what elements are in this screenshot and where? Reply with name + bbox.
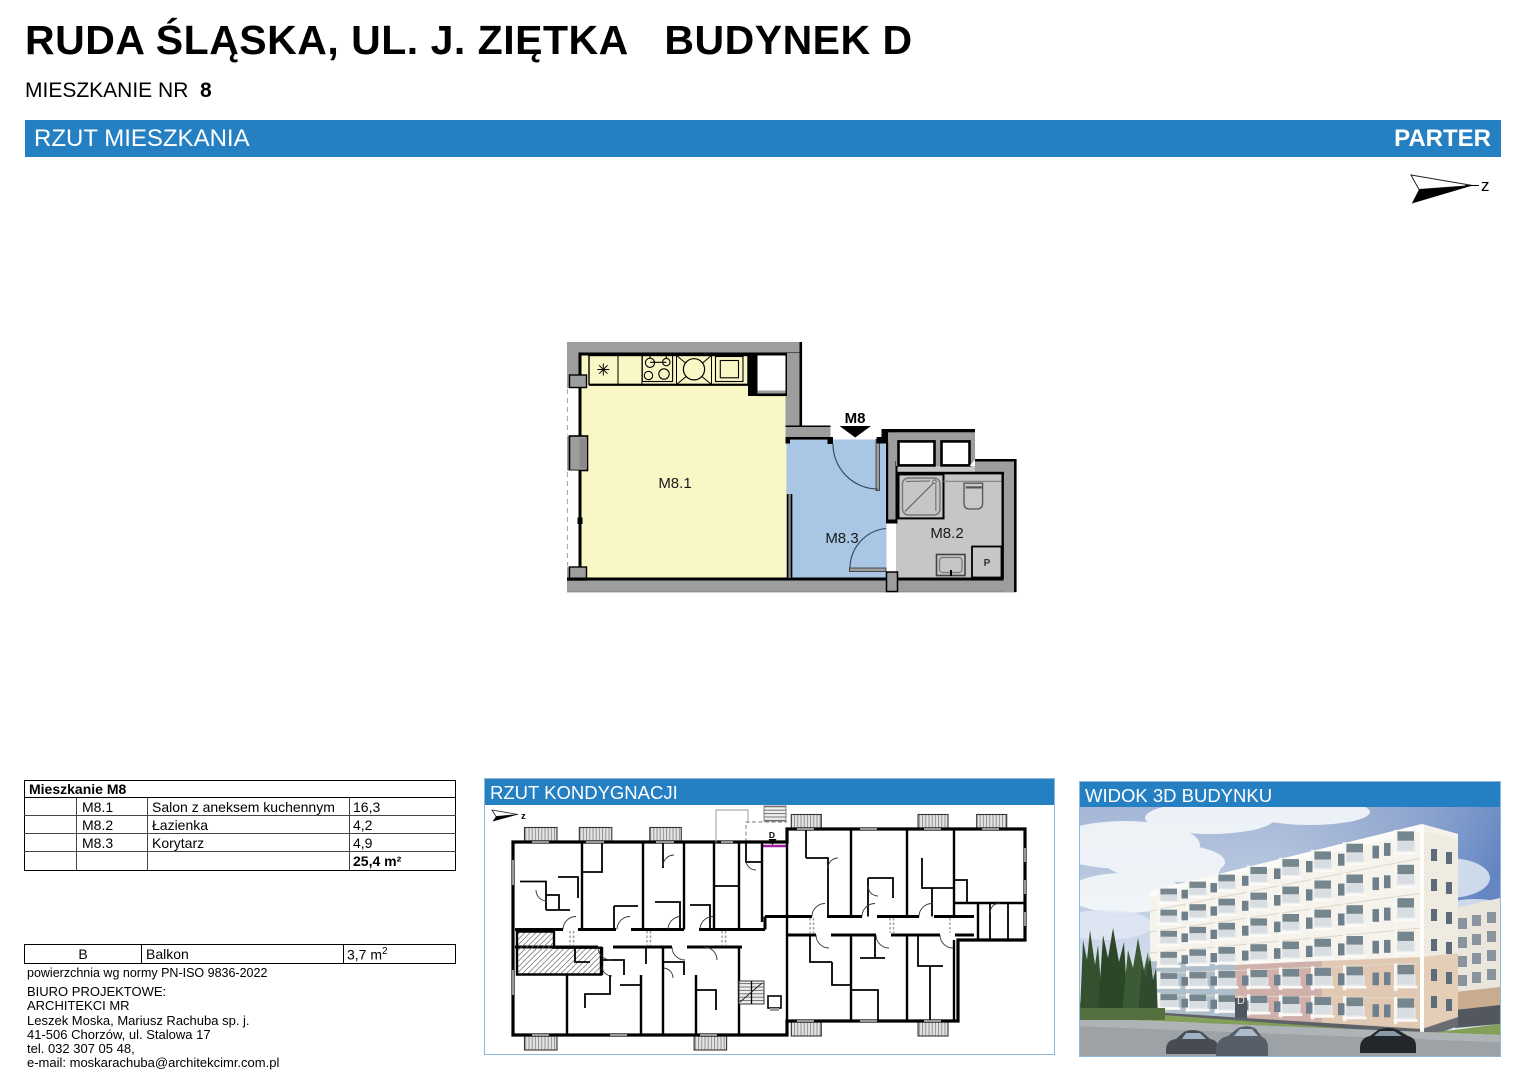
svg-text:z: z — [521, 811, 526, 822]
svg-text:M8: M8 — [845, 410, 866, 427]
svg-text:P: P — [984, 558, 991, 569]
svg-text:M8.2: M8.2 — [930, 525, 963, 542]
svg-text:M8.3: M8.3 — [825, 530, 858, 547]
svg-text:M8.1: M8.1 — [658, 475, 691, 492]
svg-text:D: D — [769, 830, 775, 840]
svg-text:z: z — [1481, 176, 1490, 195]
svg-text:D: D — [1237, 995, 1245, 1007]
